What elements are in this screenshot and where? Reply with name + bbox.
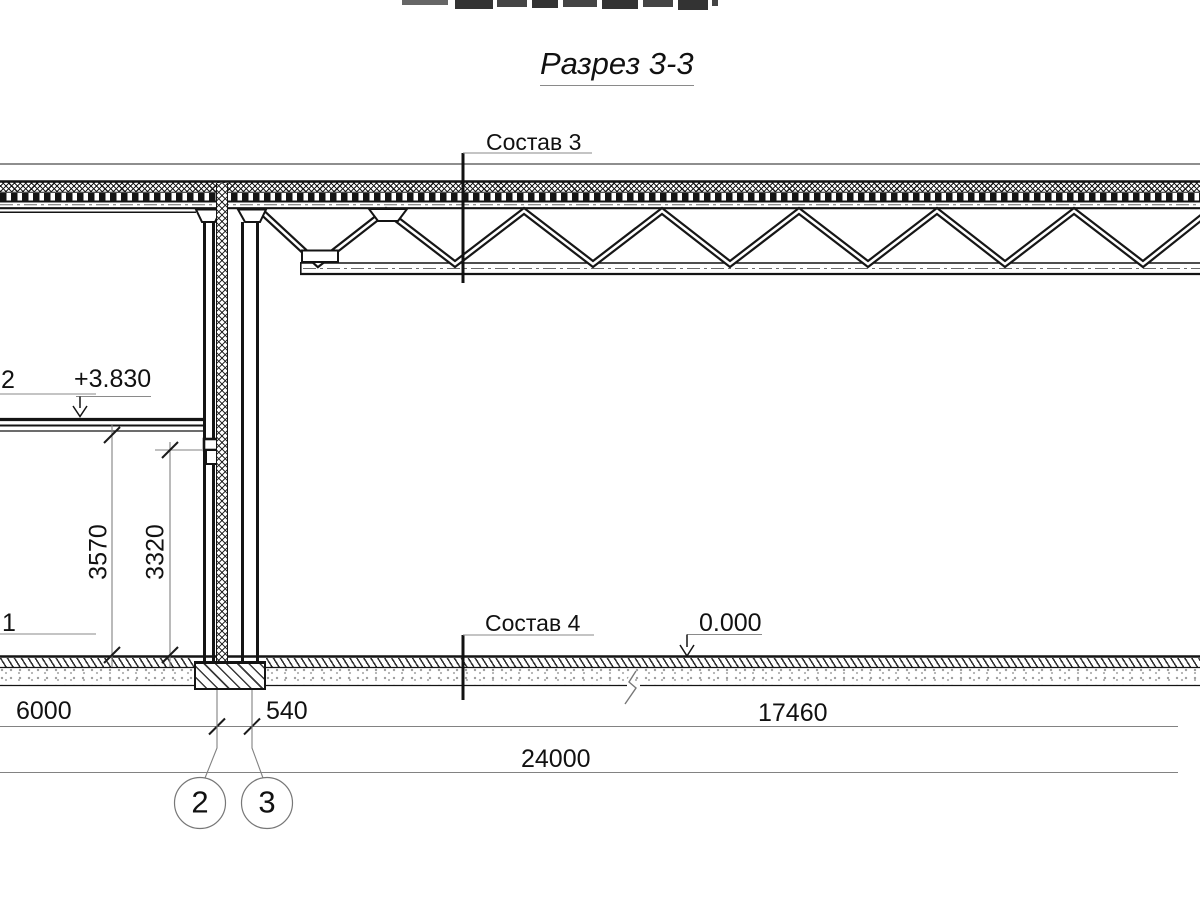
columns [196,210,266,662]
foundation-block [194,661,266,690]
truss-diagonals-core [263,209,1200,264]
level-mark-upper [73,397,151,417]
dim-3570: 3570 [85,524,114,580]
edge-callout-lower: 1 [2,609,16,638]
truss-diagonals [263,209,1200,264]
break-symbol [625,671,636,704]
column-right-capital [238,210,266,223]
level-label-ground: 0.000 [699,609,762,638]
drawing-linework [0,0,1200,900]
roof-truss [263,209,1200,275]
dim-6000: 6000 [16,697,72,726]
dim-24000: 24000 [521,745,591,774]
grid-axis-2-label: 2 [191,784,208,820]
sostav3-label: Состав 3 [486,129,581,156]
sostav4-label: Состав 4 [485,610,580,637]
ground-floor-slab [0,657,1200,686]
dim-3320: 3320 [142,524,171,580]
section-drawing: Разрез 3-3 Состав 3 Состав 4 +3.830 0.00… [0,0,1200,900]
drawing-title: Разрез 3-3 [540,46,694,86]
cropped-text-fragment [402,0,718,10]
upper-floor-slab [0,420,218,465]
dim-540: 540 [266,697,308,726]
truss-bottom-chord [300,262,1200,275]
truss-gusset-bottom [302,251,338,263]
dim-17460: 17460 [758,699,828,728]
roof-assembly [0,164,1200,212]
grid-axis-3-label: 3 [258,784,275,820]
level-label-upper: +3.830 [74,365,151,394]
masonry-wall [216,183,228,666]
edge-callout-lines [0,394,96,634]
edge-callout-upper: 2 [1,366,15,395]
